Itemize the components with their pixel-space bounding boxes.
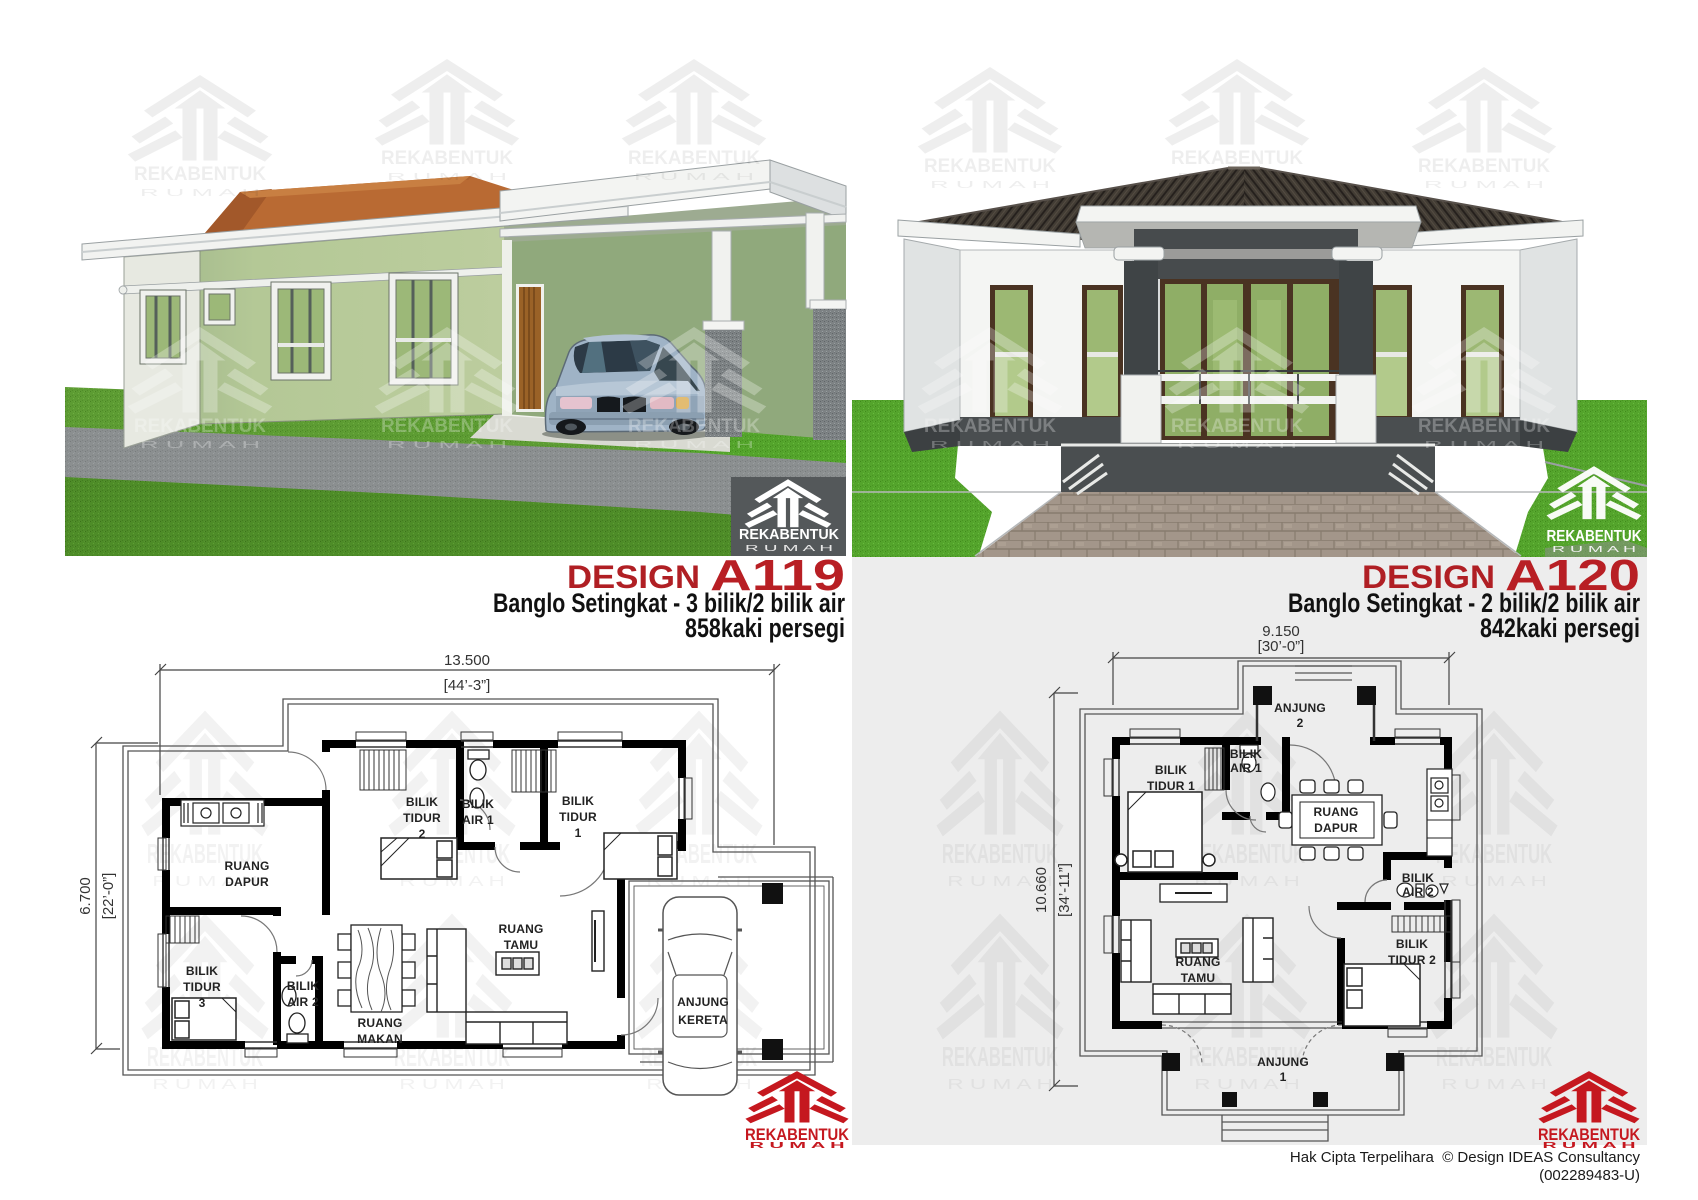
svg-text:REKABENTUK: REKABENTUK [739, 526, 839, 543]
svg-text:RUANG: RUANG [499, 922, 544, 936]
svg-text:[30’-0”]: [30’-0”] [1258, 638, 1305, 655]
svg-text:3: 3 [199, 996, 206, 1010]
svg-text:[34’-11”]: [34’-11”] [1056, 863, 1073, 917]
svg-text:858kaki persegi: 858kaki persegi [685, 613, 845, 643]
svg-text:DAPUR: DAPUR [225, 875, 269, 889]
svg-text:10.660: 10.660 [1033, 867, 1050, 913]
svg-text:TIDUR 2: TIDUR 2 [1388, 953, 1436, 967]
svg-text:DAPUR: DAPUR [1314, 821, 1358, 835]
svg-text:2: 2 [419, 827, 426, 841]
svg-text:BILIK: BILIK [1396, 937, 1428, 951]
svg-text:RUANG: RUANG [358, 1016, 403, 1030]
svg-text:RUANG: RUANG [1314, 805, 1359, 819]
svg-text:1: 1 [575, 826, 582, 840]
svg-text:BILIK: BILIK [562, 794, 594, 808]
svg-text:KERETA: KERETA [678, 1013, 728, 1027]
svg-text:AIR 1: AIR 1 [462, 813, 494, 827]
svg-text:[22’-0”]: [22’-0”] [100, 873, 117, 920]
svg-text:BILIK: BILIK [287, 979, 319, 993]
svg-text:ANJUNG: ANJUNG [1274, 701, 1326, 715]
svg-text:AIR 2: AIR 2 [287, 995, 319, 1009]
svg-text:RUANG: RUANG [225, 859, 270, 873]
svg-text:13.500: 13.500 [444, 652, 490, 669]
svg-text:Hak Cipta Terpelihara © Desig: Hak Cipta Terpelihara © Design IDEAS Con… [1290, 1149, 1641, 1166]
svg-text:ANJUNG: ANJUNG [677, 995, 729, 1009]
svg-text:TAMU: TAMU [504, 938, 539, 952]
svg-text:BILIK: BILIK [406, 795, 438, 809]
svg-text:1: 1 [1280, 1070, 1287, 1084]
svg-text:BILIK: BILIK [1402, 871, 1434, 885]
svg-text:2: 2 [1297, 716, 1304, 730]
svg-text:RUANG: RUANG [1176, 955, 1221, 969]
svg-text:REKABENTUK: REKABENTUK [1547, 528, 1642, 545]
svg-text:6.700: 6.700 [77, 877, 94, 915]
svg-text:TIDUR: TIDUR [403, 811, 441, 825]
svg-text:(002289483-U): (002289483-U) [1539, 1167, 1640, 1184]
svg-text:BILIK: BILIK [186, 964, 218, 978]
svg-text:TIDUR: TIDUR [559, 810, 597, 824]
svg-text:[44’-3”]: [44’-3”] [444, 677, 491, 694]
svg-text:ANJUNG: ANJUNG [1257, 1055, 1309, 1069]
svg-text:R U M A H: R U M A H [750, 1141, 846, 1150]
svg-text:TIDUR 1: TIDUR 1 [1147, 779, 1195, 793]
svg-text:TAMU: TAMU [1181, 971, 1216, 985]
svg-text:TIDUR: TIDUR [183, 980, 221, 994]
svg-text:AIR 2: AIR 2 [1402, 885, 1434, 899]
svg-text:842kaki persegi: 842kaki persegi [1480, 613, 1640, 643]
svg-text:AIR 1: AIR 1 [1230, 761, 1262, 775]
svg-text:BILIK: BILIK [1155, 763, 1187, 777]
svg-text:BILIK: BILIK [1230, 747, 1262, 761]
svg-text:MAKAN: MAKAN [357, 1032, 403, 1046]
svg-text:BILIK: BILIK [462, 797, 494, 811]
